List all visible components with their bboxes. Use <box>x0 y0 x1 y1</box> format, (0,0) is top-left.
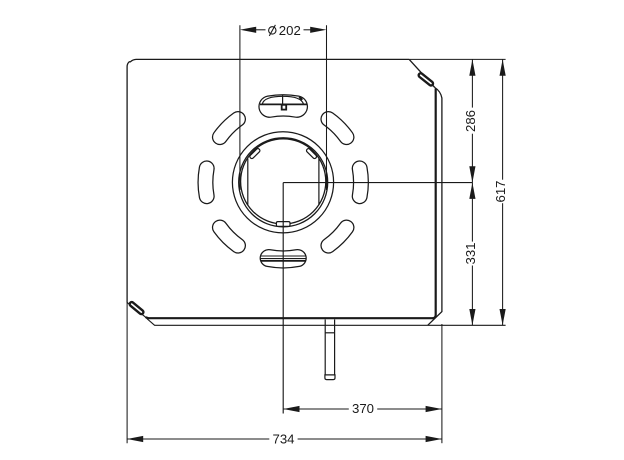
svg-text:331: 331 <box>463 242 478 264</box>
svg-text:734: 734 <box>272 431 294 446</box>
svg-text:370: 370 <box>352 401 374 416</box>
svg-text:286: 286 <box>463 110 478 132</box>
svg-text:617: 617 <box>493 180 508 202</box>
svg-text:202: 202 <box>279 23 301 38</box>
